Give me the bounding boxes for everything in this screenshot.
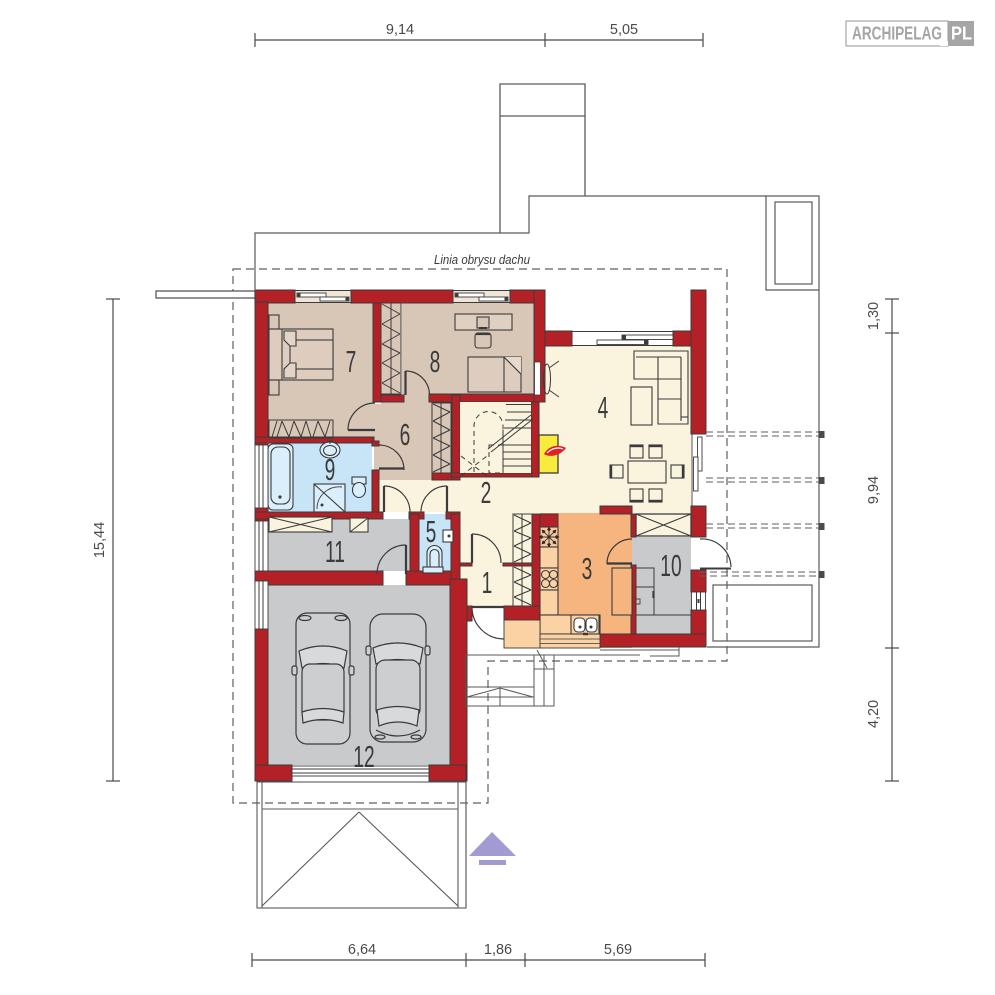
svg-text:1,86: 1,86 bbox=[484, 942, 512, 958]
svg-text:PL: PL bbox=[951, 23, 972, 44]
svg-text:9,94: 9,94 bbox=[866, 476, 882, 504]
svg-text:9: 9 bbox=[325, 454, 336, 488]
svg-text:1: 1 bbox=[482, 567, 493, 601]
svg-text:10: 10 bbox=[660, 550, 681, 584]
svg-text:11: 11 bbox=[325, 536, 345, 570]
svg-text:4,20: 4,20 bbox=[866, 700, 882, 728]
svg-text:7: 7 bbox=[346, 346, 357, 380]
svg-text:5,69: 5,69 bbox=[604, 942, 632, 958]
svg-text:Linia obrysu dachu: Linia obrysu dachu bbox=[434, 252, 530, 267]
svg-text:5: 5 bbox=[426, 516, 437, 550]
svg-text:12: 12 bbox=[353, 741, 374, 775]
svg-text:4: 4 bbox=[598, 392, 609, 426]
svg-text:8: 8 bbox=[430, 346, 441, 380]
svg-text:3: 3 bbox=[582, 553, 593, 587]
svg-text:15,44: 15,44 bbox=[92, 522, 108, 558]
svg-text:ARCHIPELAG: ARCHIPELAG bbox=[852, 23, 942, 44]
svg-text:9,14: 9,14 bbox=[386, 22, 414, 38]
svg-text:6,64: 6,64 bbox=[348, 942, 376, 958]
svg-text:5,05: 5,05 bbox=[610, 22, 638, 38]
svg-text:1,30: 1,30 bbox=[866, 302, 882, 330]
svg-text:2: 2 bbox=[481, 477, 492, 511]
svg-text:6: 6 bbox=[400, 419, 411, 453]
